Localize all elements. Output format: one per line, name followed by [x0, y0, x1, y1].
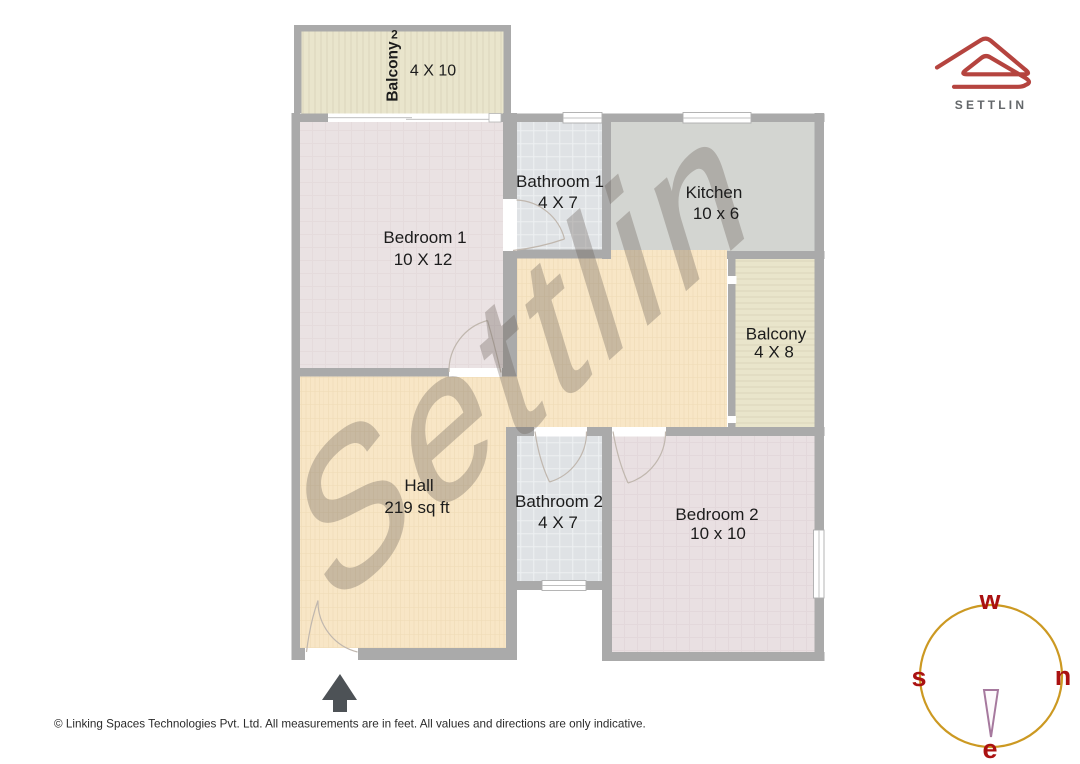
- svg-text:s: s: [911, 662, 926, 692]
- svg-text:Balcony: Balcony: [385, 41, 402, 102]
- svg-text:4 X 10: 4 X 10: [410, 63, 456, 80]
- svg-text:© Linking Spaces Technologies: © Linking Spaces Technologies Pvt. Ltd. …: [54, 718, 646, 731]
- svg-text:n: n: [1055, 661, 1072, 691]
- svg-text:10 x 6: 10 x 6: [693, 204, 739, 223]
- svg-text:4 X 7: 4 X 7: [538, 193, 578, 212]
- svg-text:SETTLIN: SETTLIN: [955, 98, 1027, 112]
- svg-text:w: w: [978, 585, 1001, 615]
- svg-text:10 X 12: 10 X 12: [394, 250, 453, 269]
- svg-text:Hall: Hall: [404, 476, 433, 495]
- svg-text:Balcony: Balcony: [746, 325, 807, 344]
- svg-text:219 sq ft: 219 sq ft: [384, 498, 449, 517]
- svg-text:Kitchen: Kitchen: [686, 183, 743, 202]
- svg-text:Bathroom 1: Bathroom 1: [516, 172, 604, 191]
- svg-text:10 x 10: 10 x 10: [690, 524, 746, 543]
- svg-text:4 X 7: 4 X 7: [538, 513, 578, 532]
- svg-text:Bedroom 2: Bedroom 2: [675, 505, 758, 524]
- svg-text:e: e: [982, 734, 997, 764]
- svg-text:Bathroom 2: Bathroom 2: [515, 492, 603, 511]
- svg-text:2: 2: [391, 28, 398, 42]
- svg-text:Bedroom 1: Bedroom 1: [383, 228, 466, 247]
- svg-text:4 X 8: 4 X 8: [754, 343, 794, 362]
